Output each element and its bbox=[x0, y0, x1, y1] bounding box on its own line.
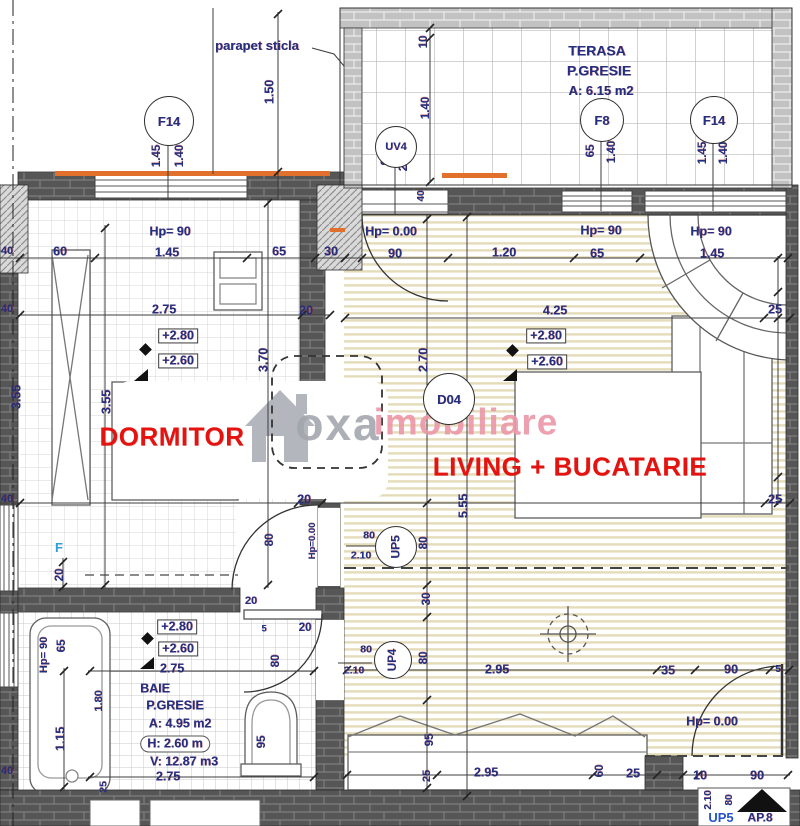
terrace-wall-top bbox=[340, 8, 792, 28]
parapet-leader bbox=[312, 48, 344, 66]
dim-label: 60 bbox=[594, 765, 606, 778]
floor-plan: parapet sticlaTERASAP.GRESIEA: 6.15 m21.… bbox=[0, 0, 800, 826]
dim-label: Hp=0.00 bbox=[308, 523, 318, 560]
dim-label: 3.55 bbox=[100, 390, 113, 414]
dim-label: H: 2.60 m bbox=[140, 735, 210, 752]
dim-label: 3.70 bbox=[257, 348, 270, 372]
watermark-text: oxa bbox=[295, 400, 380, 448]
dim-label: 80 bbox=[360, 644, 372, 655]
dim-label: +2.80 bbox=[526, 328, 566, 343]
dim-label: 25 bbox=[768, 303, 782, 316]
dim-label: 40 bbox=[1, 304, 13, 316]
dim-label: 2.95 bbox=[485, 663, 509, 676]
dim-label: 20 bbox=[245, 596, 257, 608]
dim-label: 60 bbox=[53, 245, 67, 258]
dim-label: 65 bbox=[585, 145, 597, 158]
wall-left bbox=[0, 185, 18, 790]
tag-circle-f14: F14 bbox=[144, 96, 194, 146]
dim-label: +2.80 bbox=[157, 619, 197, 634]
dim-label: 5 bbox=[261, 624, 266, 633]
dim-label: 35 bbox=[661, 664, 675, 677]
dim-label: A: 6.15 m2 bbox=[568, 84, 633, 98]
dim-label: 20 bbox=[54, 569, 66, 582]
dim-label: 40 bbox=[1, 494, 13, 506]
dim-label: 10 bbox=[418, 36, 430, 49]
room-label: DORMITOR bbox=[99, 423, 244, 450]
dim-label: 4.25 bbox=[543, 304, 567, 317]
dim-label: 20 bbox=[297, 493, 311, 506]
wall-stub-entry bbox=[645, 756, 683, 790]
dim-label: 5 bbox=[775, 665, 781, 676]
door-UV4-opening bbox=[362, 190, 448, 214]
door-UP5-opening bbox=[318, 508, 340, 586]
dim-label: 2.75 bbox=[152, 303, 176, 316]
dim-label: 80 bbox=[725, 794, 736, 805]
dim-label: 65 bbox=[590, 247, 604, 260]
dim-label: 95 bbox=[424, 734, 436, 747]
dim-label: 2.70 bbox=[417, 348, 430, 372]
dim-label: 1.45 bbox=[155, 246, 179, 259]
tag-circle-f14: F14 bbox=[690, 96, 738, 144]
dim-label: 5.55 bbox=[457, 494, 470, 518]
dim-label: BAIE bbox=[140, 682, 170, 695]
dim-label: parapet sticla bbox=[215, 39, 299, 53]
dim-label: 90 bbox=[388, 247, 402, 260]
tag-circle-uv4: UV4 bbox=[375, 126, 417, 168]
dim-label: 80 bbox=[264, 534, 276, 547]
window-F8-living bbox=[562, 191, 632, 212]
dim-label: Hp= 0.00 bbox=[686, 715, 738, 728]
dim-label: 80 bbox=[418, 537, 430, 550]
dim-label: 1.40 bbox=[606, 141, 618, 163]
dim-label: 2.10 bbox=[344, 665, 364, 676]
dim-label: 20 bbox=[299, 622, 312, 634]
dim-label: 2.75 bbox=[156, 770, 180, 783]
dim-label: Hp= 90 bbox=[149, 225, 190, 238]
dim-label: 25 bbox=[768, 493, 782, 506]
tag-circle-d04: D04 bbox=[423, 373, 475, 425]
dim-label: 40 bbox=[1, 766, 13, 778]
dim-label: 3.55 bbox=[10, 385, 23, 409]
wall-bath-north bbox=[18, 588, 240, 612]
dim-label: A: 4.95 m2 bbox=[149, 717, 212, 730]
dim-label: 65 bbox=[272, 245, 286, 258]
dim-label: 95 bbox=[256, 736, 268, 749]
dim-label: 40 bbox=[1, 246, 13, 258]
dim-label: Hp= 90 bbox=[690, 225, 731, 238]
room-label: LIVING + BUCATARIE bbox=[433, 453, 708, 480]
dim-label: +2.80 bbox=[158, 328, 198, 343]
toilet bbox=[241, 692, 301, 776]
dim-label: 2.10 bbox=[351, 550, 371, 561]
window-bathroom-left bbox=[0, 613, 18, 687]
dim-label: 1.50 bbox=[263, 80, 276, 104]
pier-hatched-left bbox=[0, 185, 28, 273]
dim-label: TERASA bbox=[568, 44, 626, 59]
tag-circle-up4: UP4 bbox=[374, 641, 412, 679]
dim-label: 25 bbox=[422, 770, 434, 782]
dim-label: 25 bbox=[98, 781, 109, 793]
dim-label: 80 bbox=[363, 530, 375, 541]
dim-label: P.GRESIE bbox=[567, 64, 631, 79]
dim-label: +2.60 bbox=[158, 641, 198, 656]
dim-label: 1.40 bbox=[174, 145, 186, 167]
dim-label: F bbox=[55, 541, 63, 555]
window-F14-bedroom bbox=[95, 174, 247, 198]
wardrobe-bedroom bbox=[52, 250, 90, 505]
dresser bbox=[214, 252, 262, 310]
dim-label: 65 bbox=[56, 640, 68, 653]
dim-label: UP5 bbox=[708, 811, 733, 825]
tag-circle-f8: F8 bbox=[580, 98, 624, 142]
dim-label: 1.40 bbox=[718, 142, 730, 164]
dim-label: 30 bbox=[324, 245, 338, 258]
dim-label: Hp= 0.00 bbox=[365, 225, 417, 238]
dim-label: 1.80 bbox=[94, 690, 106, 711]
dim-label: 1.45 bbox=[151, 145, 163, 167]
dim-label: 2.75 bbox=[160, 662, 184, 675]
window-F14-living bbox=[645, 191, 786, 212]
dim-label: 10 bbox=[693, 769, 707, 782]
dim-label: 1.40 bbox=[420, 97, 432, 119]
dim-label: 1.45 bbox=[700, 247, 724, 260]
dim-label: 25 bbox=[626, 767, 640, 780]
dim-label: V: 12.87 m3 bbox=[150, 755, 218, 768]
dim-label: 2.95 bbox=[474, 766, 498, 779]
dim-label: 1.20 bbox=[492, 246, 516, 259]
dim-label: 30 bbox=[421, 593, 433, 606]
dim-label: 80 bbox=[418, 652, 430, 665]
dim-label: P.GRESIE bbox=[146, 699, 203, 712]
terrace-wall-left bbox=[344, 28, 362, 188]
dim-label: AP.8 bbox=[747, 812, 772, 825]
dim-label: Hp= 90 bbox=[580, 224, 621, 237]
dim-label: 1.15 bbox=[54, 727, 67, 751]
dim-label: 90 bbox=[724, 663, 738, 676]
dim-label: 40 bbox=[417, 190, 428, 201]
dim-label: 2.10 bbox=[704, 790, 715, 809]
dining-table bbox=[515, 372, 701, 518]
dim-label: +2.60 bbox=[158, 353, 198, 368]
window-F-bedroom-left bbox=[0, 505, 18, 591]
dim-label: +2.60 bbox=[527, 354, 567, 369]
dim-label: 20 bbox=[299, 304, 313, 317]
tag-circle-up5: UP5 bbox=[375, 526, 417, 568]
dim-label: Hp= 90 bbox=[39, 637, 51, 673]
dim-label: 80 bbox=[270, 655, 282, 668]
terrace-wall-right bbox=[772, 8, 792, 188]
dim-label: 90 bbox=[750, 769, 764, 782]
dim-label: 1.45 bbox=[697, 142, 709, 164]
